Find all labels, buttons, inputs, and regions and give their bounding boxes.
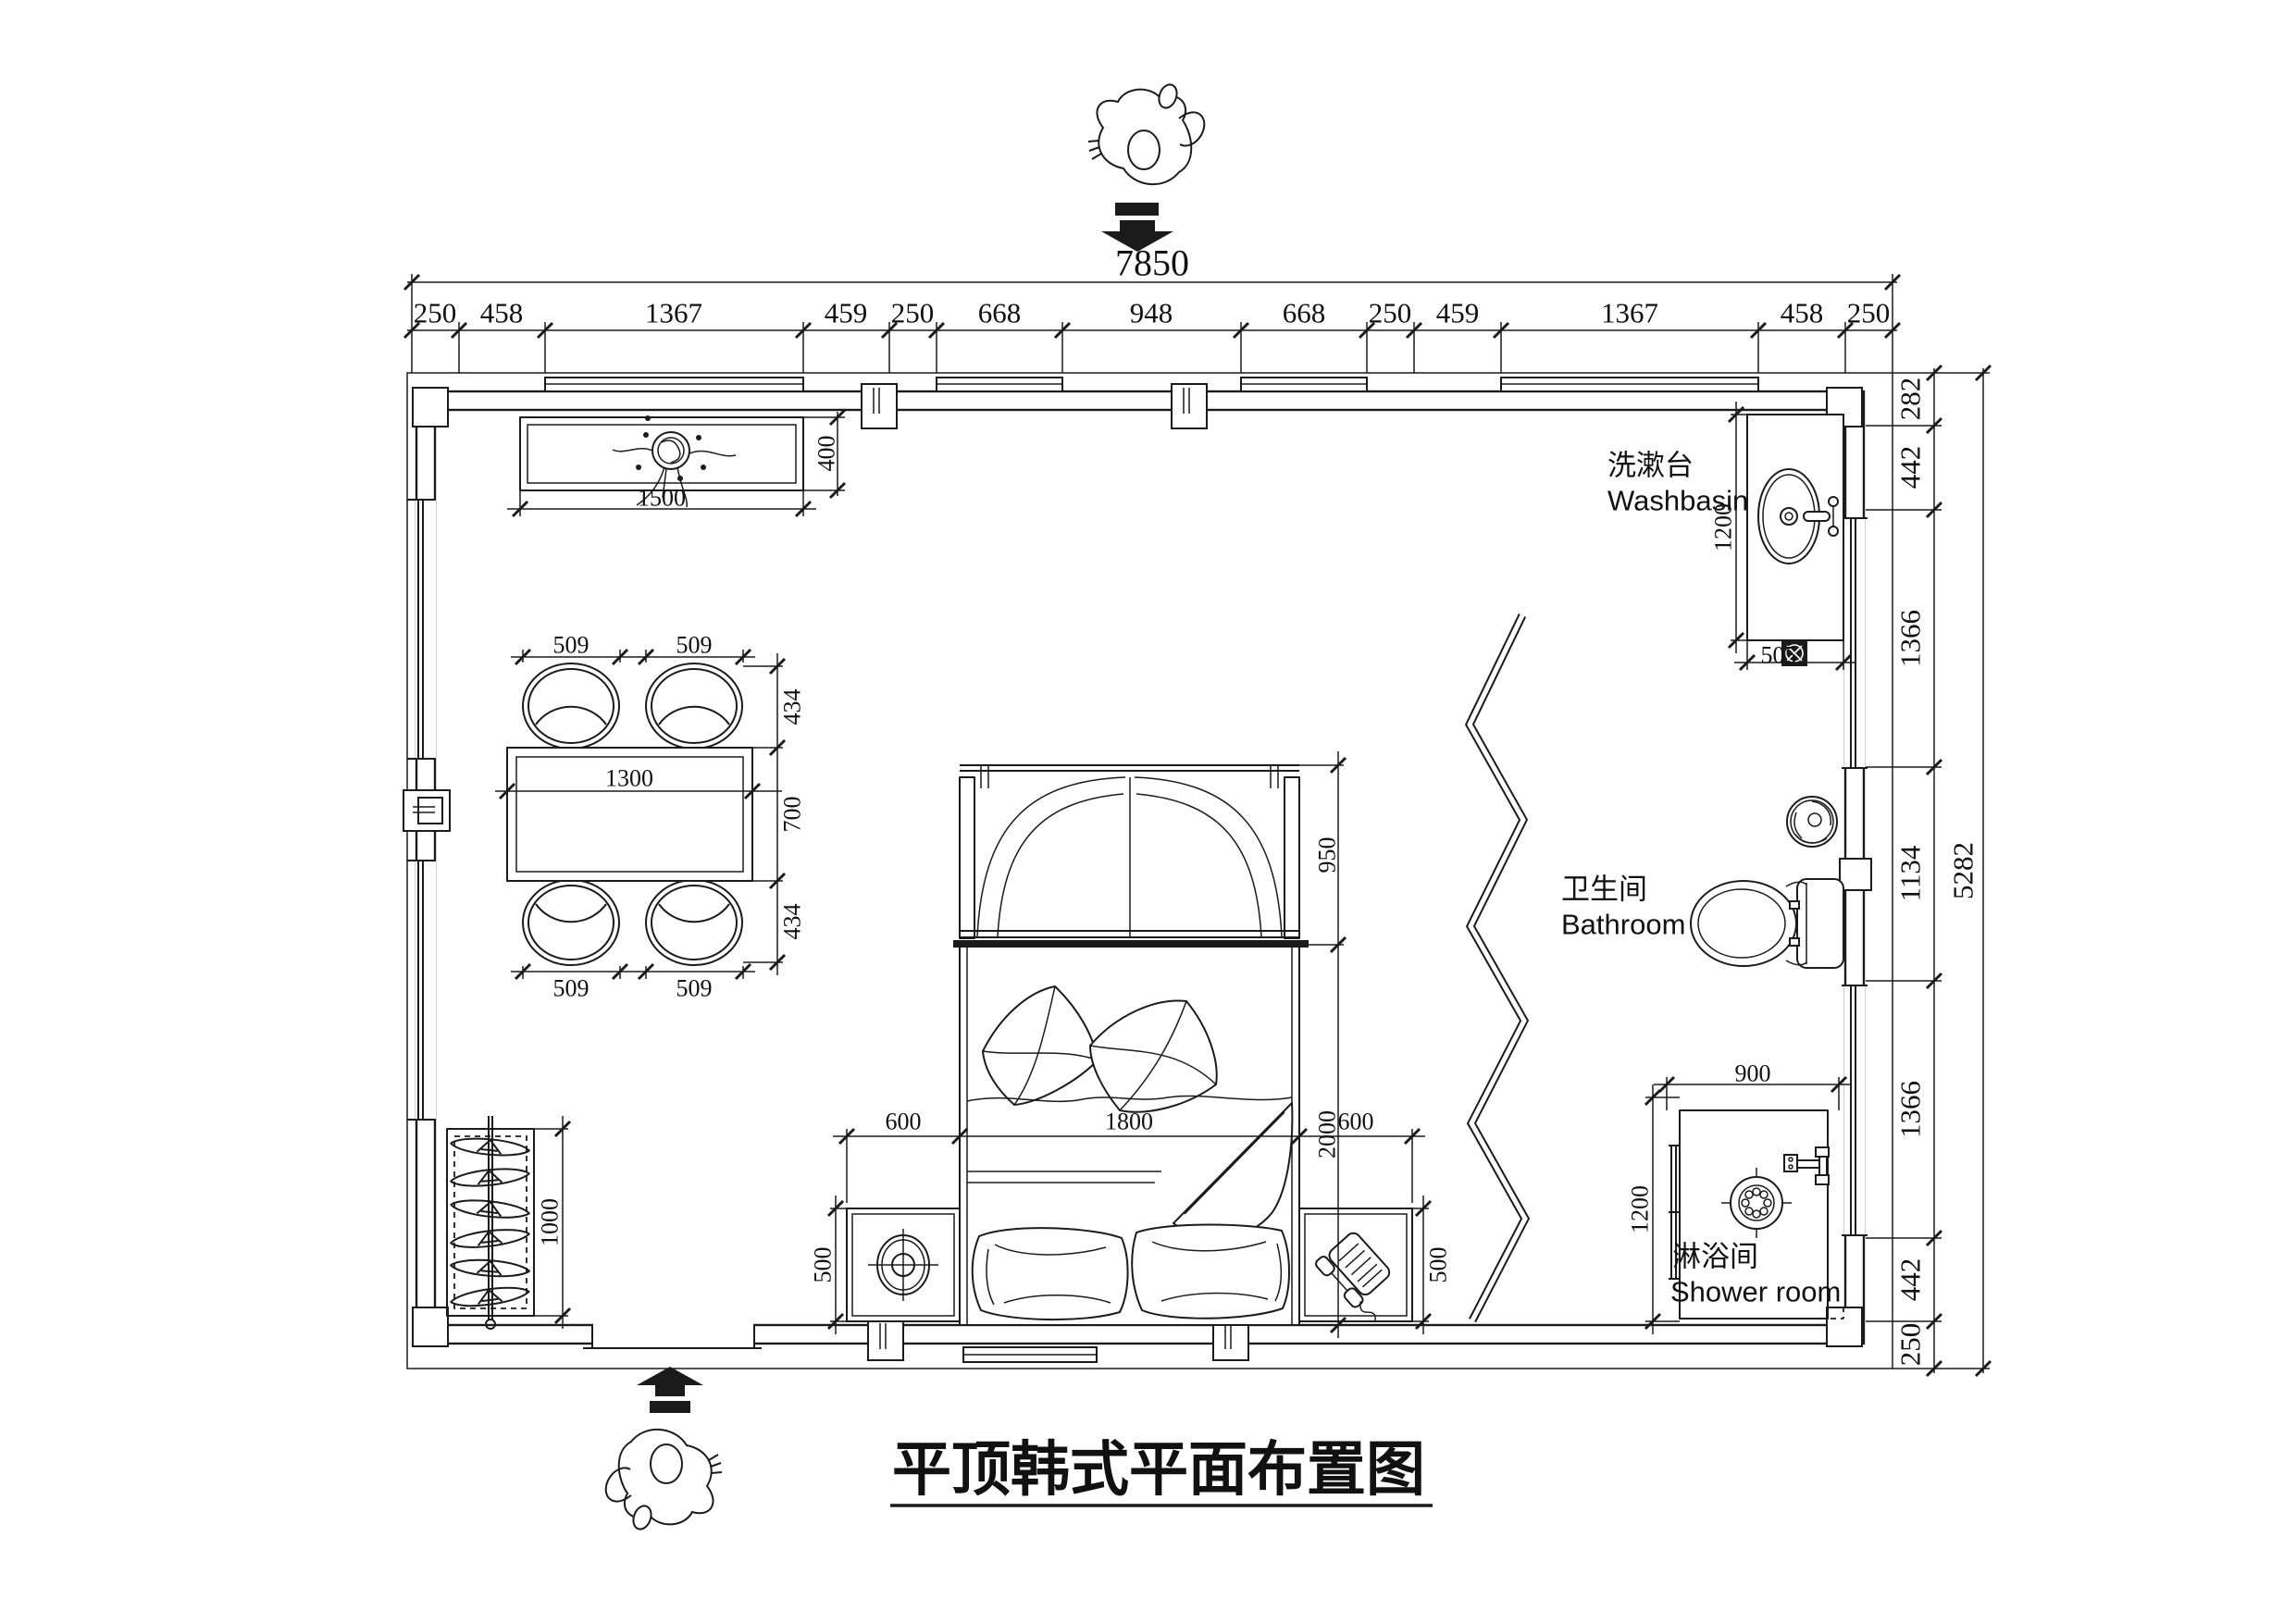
dim-chair-bl: 509 <box>553 975 590 1002</box>
window-top-2 <box>937 378 1062 391</box>
washbasin-label-en: Washbasin <box>1607 485 1748 517</box>
dim-left-stand-depth: 500 <box>810 1247 837 1283</box>
dim-right: 282 442 1366 1134 1366 442 250 5282 <box>1866 365 1991 1376</box>
entry-opening <box>593 1322 753 1346</box>
dining-set <box>507 663 752 965</box>
dim-right-2: 1366 <box>1894 610 1927 667</box>
dim-wardrobe-depth: 950 <box>1314 837 1341 873</box>
headboard <box>953 940 1309 948</box>
dim-table-width: 1300 <box>605 765 653 792</box>
shower-head-icon <box>1721 1168 1792 1238</box>
dim-right-6: 250 <box>1894 1323 1927 1367</box>
dim-shower-depth: 1200 <box>1627 1185 1654 1233</box>
floor-plan-page: 7850 250 458 1367 459 250 668 948 668 25… <box>0 0 2296 1623</box>
dim-right-0: 282 <box>1894 378 1927 421</box>
title-text: 平顶韩式平面布置图 <box>892 1436 1425 1503</box>
dim-dining-side-0: 434 <box>779 689 806 725</box>
shower-arm-icon <box>1784 1147 1829 1184</box>
wall-top <box>416 391 1845 410</box>
dim-chair-br: 509 <box>676 975 713 1002</box>
dim-cabinet-width: 1500 <box>638 485 686 512</box>
arrow-up-icon <box>637 1367 703 1396</box>
dim-right-3: 1134 <box>1894 845 1927 901</box>
nightstand-left <box>847 1208 960 1321</box>
post-bottom-left <box>413 1307 448 1346</box>
dim-chair-tl: 509 <box>553 632 590 659</box>
dim-top-5: 668 <box>978 297 1022 329</box>
dim-top-9: 459 <box>1436 297 1480 329</box>
dim-rack-length: 1000 <box>537 1198 564 1246</box>
washbasin-label-zh: 洗漱台 <box>1607 450 1694 482</box>
bathroom-label-zh: 卫生间 <box>1561 873 1647 906</box>
dim-right-total: 5282 <box>1947 842 1980 899</box>
post-bottom-right <box>1827 1307 1862 1346</box>
dim-dining-side-2: 434 <box>779 904 806 940</box>
dim-top-8: 250 <box>1369 297 1412 329</box>
dim-right-stand: 600 <box>1338 1109 1374 1135</box>
dim-right-4: 1366 <box>1894 1081 1927 1138</box>
chair-bottom-left <box>523 880 619 965</box>
dim-top-7: 668 <box>1283 297 1326 329</box>
person-top-view-icon <box>606 1430 722 1531</box>
drawing-title: 平顶韩式平面布置图 <box>890 1436 1433 1505</box>
floor-plan-drawing: 7850 250 458 1367 459 250 668 948 668 25… <box>0 0 2296 1623</box>
dim-basin-width: 505 <box>1761 642 1797 669</box>
toilet-area <box>1691 797 1843 968</box>
dim-dining-side-1: 700 <box>779 797 806 833</box>
chair-top-left <box>523 663 619 749</box>
dim-bed-length: 2000 <box>1314 1110 1341 1158</box>
window-top-4 <box>1501 378 1758 391</box>
dim-right-stand-depth: 500 <box>1425 1247 1452 1283</box>
dim-top-12: 250 <box>1847 297 1891 329</box>
dim-top-6: 948 <box>1130 297 1173 329</box>
dim-top: 7850 250 458 1367 459 250 668 948 668 25… <box>404 242 1900 374</box>
dim-top-11: 458 <box>1781 297 1824 329</box>
washbasin-counter <box>1747 415 1843 640</box>
dim-top-2: 1367 <box>645 297 702 329</box>
entry-marker-top <box>1088 82 1204 252</box>
post-right-mid <box>1840 859 1871 890</box>
chair-bottom-right <box>646 880 742 965</box>
window-top-1 <box>545 378 803 391</box>
dim-left-stand: 600 <box>886 1109 922 1135</box>
shower-label-zh: 淋浴间 <box>1672 1241 1758 1273</box>
dim-shower-width: 900 <box>1735 1060 1771 1087</box>
dim-bed-width: 1800 <box>1105 1109 1153 1135</box>
dim-top-3: 459 <box>825 297 868 329</box>
window-left-2 <box>407 861 436 1120</box>
wardrobe <box>960 765 1299 938</box>
post-top-left <box>413 388 448 427</box>
dim-top-0: 250 <box>414 297 457 329</box>
dim-right-1: 442 <box>1894 446 1927 489</box>
exhaust-fan-icon <box>1787 797 1837 847</box>
dim-top-1: 458 <box>480 297 524 329</box>
dim-cabinet-depth: 400 <box>813 436 840 472</box>
dim-right-5: 442 <box>1894 1258 1927 1302</box>
window-right-1 <box>1842 518 1868 768</box>
dim-top-4: 250 <box>891 297 935 329</box>
dim-top-total: 7850 <box>1115 242 1189 284</box>
washbasin-area <box>1747 415 1843 666</box>
nightstand-right <box>1299 1208 1412 1326</box>
window-right-2 <box>1842 985 1868 1235</box>
partition-screen <box>1470 615 1525 1320</box>
dim-rack: 1000 <box>534 1116 570 1329</box>
dim-chair-tr: 509 <box>676 632 713 659</box>
toilet-icon <box>1691 879 1843 968</box>
dim-top-10: 1367 <box>1601 297 1658 329</box>
chair-top-right <box>646 663 742 749</box>
bathroom-label-en: Bathroom <box>1561 909 1685 941</box>
person-top-view-icon <box>1088 82 1204 184</box>
shower-label-en: Shower room <box>1670 1276 1841 1308</box>
window-top-3 <box>1241 378 1367 391</box>
entry-marker-bottom <box>606 1367 722 1531</box>
window-left-1 <box>407 500 436 759</box>
clothes-rack <box>447 1116 534 1329</box>
